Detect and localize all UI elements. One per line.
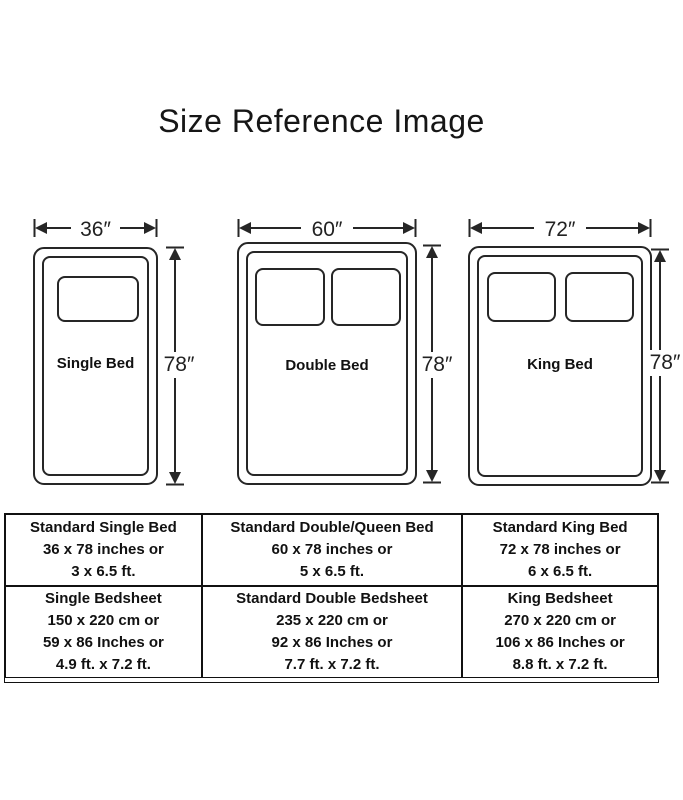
bed-name-label: King Bed xyxy=(470,356,650,373)
bed-name-label: Double Bed xyxy=(239,357,415,374)
width-label: 72″ xyxy=(545,218,576,241)
width-arrow: 36″ xyxy=(33,217,158,239)
height-label: 78″ xyxy=(159,352,199,378)
cell-line: 7.7 ft. x 7.2 ft. xyxy=(284,654,379,676)
cell-line: Standard Double Bedsheet xyxy=(236,588,428,610)
cell-line: 6 x 6.5 ft. xyxy=(528,561,592,583)
height-label: 78″ xyxy=(646,350,683,376)
table-cell-single-bedsheet: Single Bedsheet 150 x 220 cm or 59 x 86 … xyxy=(5,586,202,678)
cell-line: Standard King Bed xyxy=(493,517,628,539)
page-title: Size Reference Image xyxy=(0,103,643,140)
cell-line: 235 x 220 cm or xyxy=(276,610,388,632)
height-label: 78″ xyxy=(418,352,456,378)
cell-line: King Bedsheet xyxy=(508,588,613,610)
width-arrow: 60″ xyxy=(237,217,417,239)
size-reference-image: Size Reference Image 36″ Single Bed 78″ xyxy=(0,0,683,800)
table-cell-standard-single-bed: Standard Single Bed 36 x 78 inches or 3 … xyxy=(5,514,202,586)
pillow xyxy=(57,276,139,322)
cell-line: Single Bedsheet xyxy=(45,588,162,610)
single-bed-diagram: 36″ Single Bed 78″ xyxy=(33,215,238,493)
cell-line: 72 x 78 inches or xyxy=(500,539,621,561)
cell-line: 3 x 6.5 ft. xyxy=(71,561,135,583)
pillow xyxy=(331,268,401,326)
cell-line: 106 x 86 Inches or xyxy=(495,632,624,654)
table-cell-standard-double-queen-bed: Standard Double/Queen Bed 60 x 78 inches… xyxy=(202,514,462,586)
cell-line: 150 x 220 cm or xyxy=(48,610,160,632)
pillow xyxy=(255,268,325,326)
pillow xyxy=(565,272,634,322)
table-cell-king-bedsheet: King Bedsheet 270 x 220 cm or 106 x 86 I… xyxy=(462,586,658,678)
width-label: 60″ xyxy=(312,218,343,241)
bed-outline: Single Bed xyxy=(33,247,158,485)
king-bed-diagram: 72″ King Bed 78″ xyxy=(468,215,683,493)
cell-line: Standard Single Bed xyxy=(30,517,177,539)
cell-line: 8.8 ft. x 7.2 ft. xyxy=(513,654,608,676)
cell-line: 59 x 86 Inches or xyxy=(43,632,164,654)
cell-line: 60 x 78 inches or xyxy=(272,539,393,561)
double-bed-diagram: 60″ Double Bed 78″ xyxy=(237,215,467,493)
size-table: Standard Single Bed 36 x 78 inches or 3 … xyxy=(4,513,659,683)
cell-line: 36 x 78 inches or xyxy=(43,539,164,561)
cell-line: 5 x 6.5 ft. xyxy=(300,561,364,583)
bed-outline: King Bed xyxy=(468,246,652,486)
table-cell-standard-double-bedsheet: Standard Double Bedsheet 235 x 220 cm or… xyxy=(202,586,462,678)
width-arrow: 72″ xyxy=(468,217,652,239)
cell-line: 270 x 220 cm or xyxy=(504,610,616,632)
cell-line: 4.9 ft. x 7.2 ft. xyxy=(56,654,151,676)
cell-line: Standard Double/Queen Bed xyxy=(230,517,433,539)
pillow xyxy=(487,272,556,322)
cell-line: 92 x 86 Inches or xyxy=(272,632,393,654)
bed-outline: Double Bed xyxy=(237,242,417,485)
width-label: 36″ xyxy=(80,218,111,241)
table-cell-standard-king-bed: Standard King Bed 72 x 78 inches or 6 x … xyxy=(462,514,658,586)
bed-name-label: Single Bed xyxy=(35,355,156,372)
